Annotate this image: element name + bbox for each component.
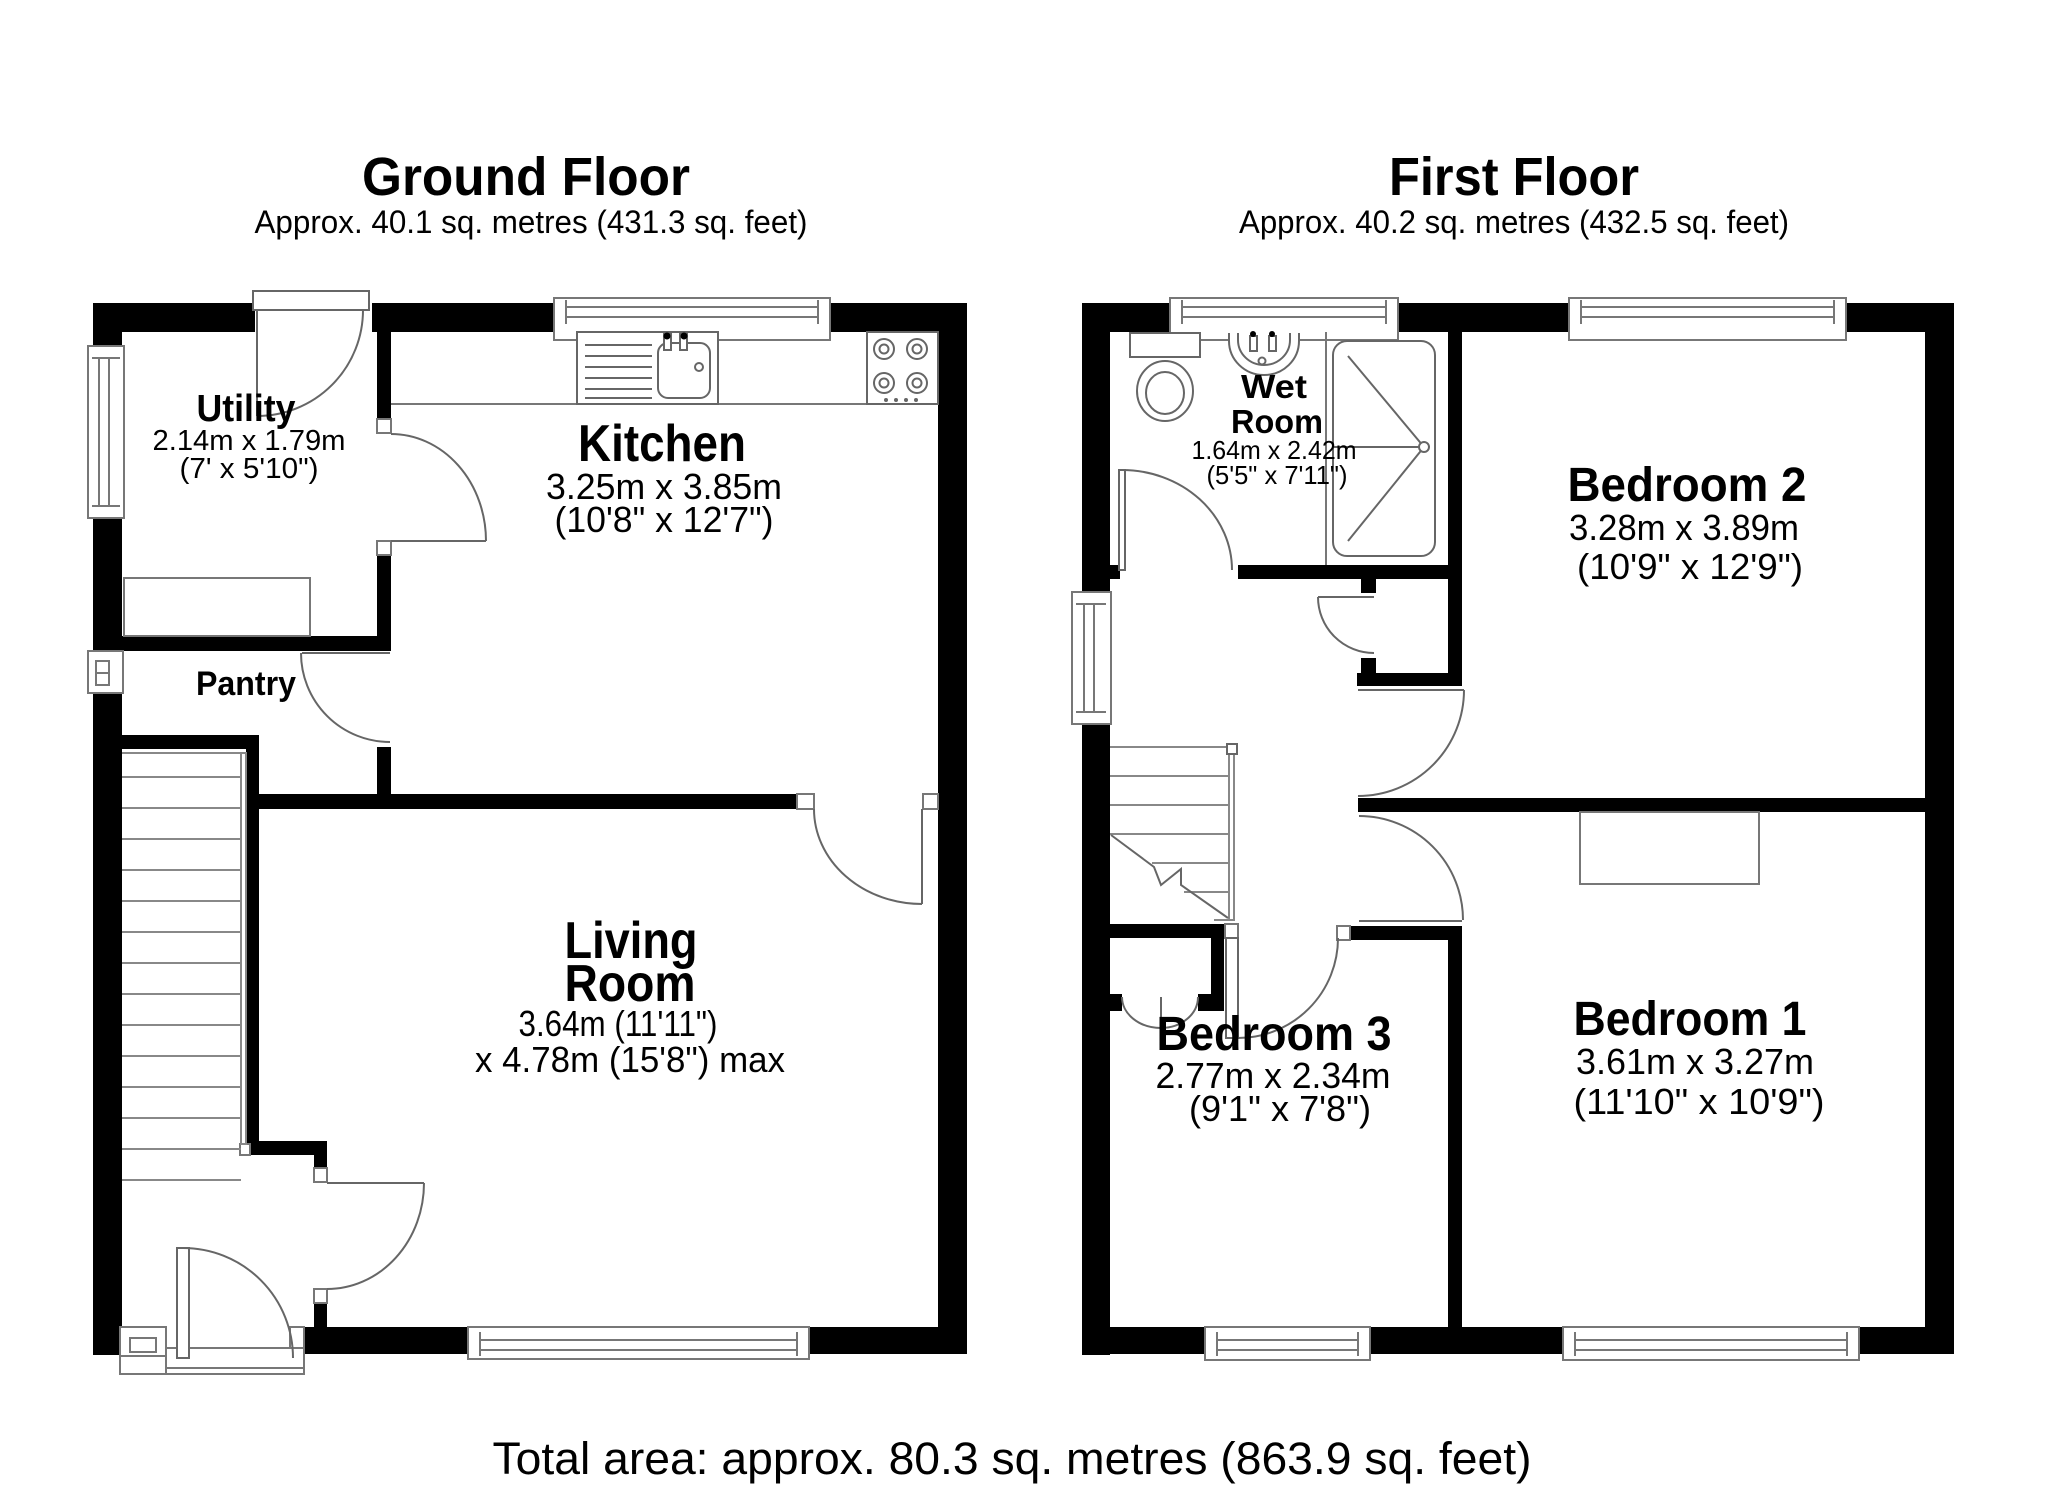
svg-text:Utility: Utility [197,388,296,430]
svg-text:Kitchen: Kitchen [578,415,746,473]
svg-text:(10'8" x 12'7"): (10'8" x 12'7") [555,499,774,540]
svg-text:Bedroom 2: Bedroom 2 [1568,459,1807,512]
svg-text:(9'1" x 7'8"): (9'1" x 7'8") [1189,1088,1371,1129]
svg-text:Wet: Wet [1241,368,1307,405]
svg-text:3.64m (11'11"): 3.64m (11'11") [519,1003,718,1044]
svg-text:(5'5" x 7'11"): (5'5" x 7'11") [1207,460,1348,490]
svg-text:Approx. 40.1 sq. metres (431.3: Approx. 40.1 sq. metres (431.3 sq. feet) [255,204,808,240]
svg-text:3.28m x 3.89m: 3.28m x 3.89m [1569,507,1799,548]
svg-text:Total area: approx. 80.3 sq. m: Total area: approx. 80.3 sq. metres (863… [493,1433,1532,1484]
svg-text:(10'9" x 12'9"): (10'9" x 12'9") [1577,546,1803,587]
svg-text:x 4.78m (15'8") max: x 4.78m (15'8") max [475,1039,785,1080]
svg-text:(7' x 5'10"): (7' x 5'10") [180,453,319,485]
svg-text:Bedroom 1: Bedroom 1 [1574,993,1807,1046]
svg-text:Approx. 40.2 sq. metres (432.5: Approx. 40.2 sq. metres (432.5 sq. feet) [1239,204,1789,240]
svg-text:Bedroom 3: Bedroom 3 [1157,1008,1392,1061]
svg-text:(11'10" x 10'9"): (11'10" x 10'9") [1574,1081,1825,1122]
svg-text:Ground Floor: Ground Floor [362,147,690,207]
svg-text:3.61m x 3.27m: 3.61m x 3.27m [1576,1041,1814,1082]
svg-text:First Floor: First Floor [1389,147,1639,207]
svg-text:Pantry: Pantry [196,665,296,703]
